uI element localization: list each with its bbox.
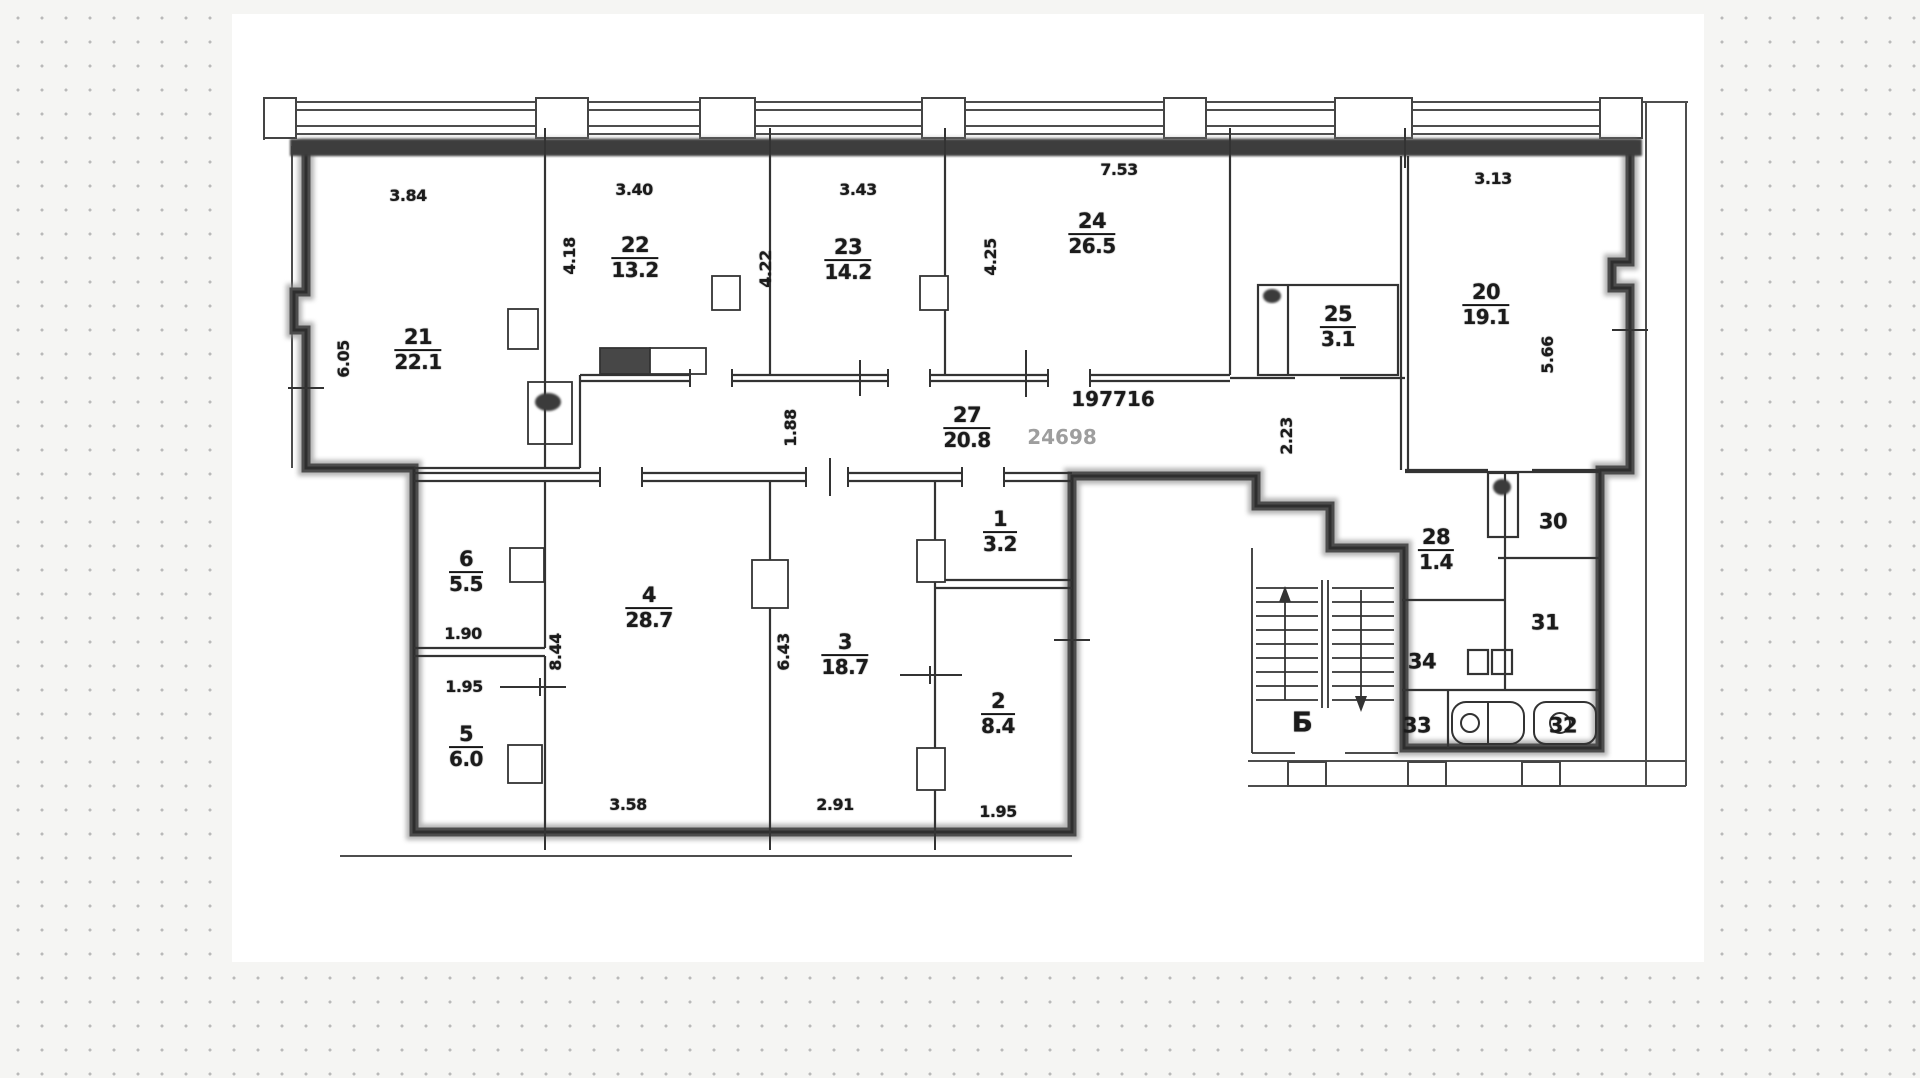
room-label-1: 1 3.2 bbox=[983, 509, 1017, 555]
dim-room4-width: 3.58 bbox=[609, 797, 646, 813]
door-notches bbox=[508, 276, 948, 790]
dim-room3-width: 2.91 bbox=[816, 797, 853, 813]
room-label-34: 34 bbox=[1408, 651, 1436, 672]
room-label-3: 3 18.7 bbox=[821, 632, 868, 678]
room-label-5: 5 6.0 bbox=[449, 724, 483, 770]
staircase-label: Б bbox=[1292, 709, 1313, 738]
room-label-30: 30 bbox=[1539, 511, 1567, 532]
dim-room23-height: 4.22 bbox=[758, 250, 774, 287]
dim-room6-width: 1.90 bbox=[444, 626, 481, 642]
dim-room4-height: 8.44 bbox=[548, 633, 564, 670]
dim-room22-width: 3.40 bbox=[615, 182, 652, 198]
room-label-23: 23 14.2 bbox=[824, 237, 871, 283]
window-piers bbox=[264, 98, 1642, 138]
room-label-2: 2 8.4 bbox=[981, 691, 1015, 737]
top-exterior-wall bbox=[290, 139, 1642, 156]
dim-room5-width: 1.95 bbox=[445, 679, 482, 695]
closets bbox=[528, 289, 1511, 495]
dim-corridor-height: 1.88 bbox=[783, 409, 799, 446]
room-label-32: 32 bbox=[1549, 715, 1577, 736]
room-label-28: 28 1.4 bbox=[1418, 527, 1454, 573]
staircase bbox=[1252, 548, 1398, 753]
dim-room22-height: 4.18 bbox=[562, 237, 578, 274]
room-label-31: 31 bbox=[1531, 612, 1559, 633]
room-label-27: 27 20.8 bbox=[943, 405, 990, 451]
room-label-20: 20 19.1 bbox=[1462, 282, 1509, 328]
dim-room21-width: 3.84 bbox=[389, 188, 426, 204]
vent-openings bbox=[1288, 762, 1560, 786]
dim-room3-height: 6.43 bbox=[776, 633, 792, 670]
dim-room20-height: 5.66 bbox=[1540, 336, 1556, 373]
stamp-number-black: 197716 bbox=[1071, 389, 1155, 409]
scanned-floorplan-page: { "plan": { "stamp_black": "197716", "st… bbox=[0, 0, 1920, 1078]
room-label-21: 21 22.1 bbox=[394, 327, 441, 373]
room-label-4: 4 28.7 bbox=[625, 585, 672, 631]
dim-room23-width: 3.43 bbox=[839, 182, 876, 198]
room-label-33: 33 bbox=[1403, 715, 1431, 736]
room-label-25: 25 3.1 bbox=[1320, 304, 1356, 350]
dim-stub-height: 2.23 bbox=[1279, 417, 1295, 454]
dim-room24-width: 7.53 bbox=[1100, 162, 1137, 178]
floorplan-drawing bbox=[0, 0, 1920, 1078]
room-label-24: 24 26.5 bbox=[1068, 211, 1115, 257]
room-label-6: 6 5.5 bbox=[449, 549, 483, 595]
dim-room20-width: 3.13 bbox=[1474, 171, 1511, 187]
stamp-number-gray: 24698 bbox=[1027, 427, 1097, 447]
dim-room21-height: 6.05 bbox=[336, 340, 352, 377]
room-label-22: 22 13.2 bbox=[611, 235, 658, 281]
dim-room24-height: 4.25 bbox=[983, 238, 999, 275]
dim-room2-width: 1.95 bbox=[979, 804, 1016, 820]
